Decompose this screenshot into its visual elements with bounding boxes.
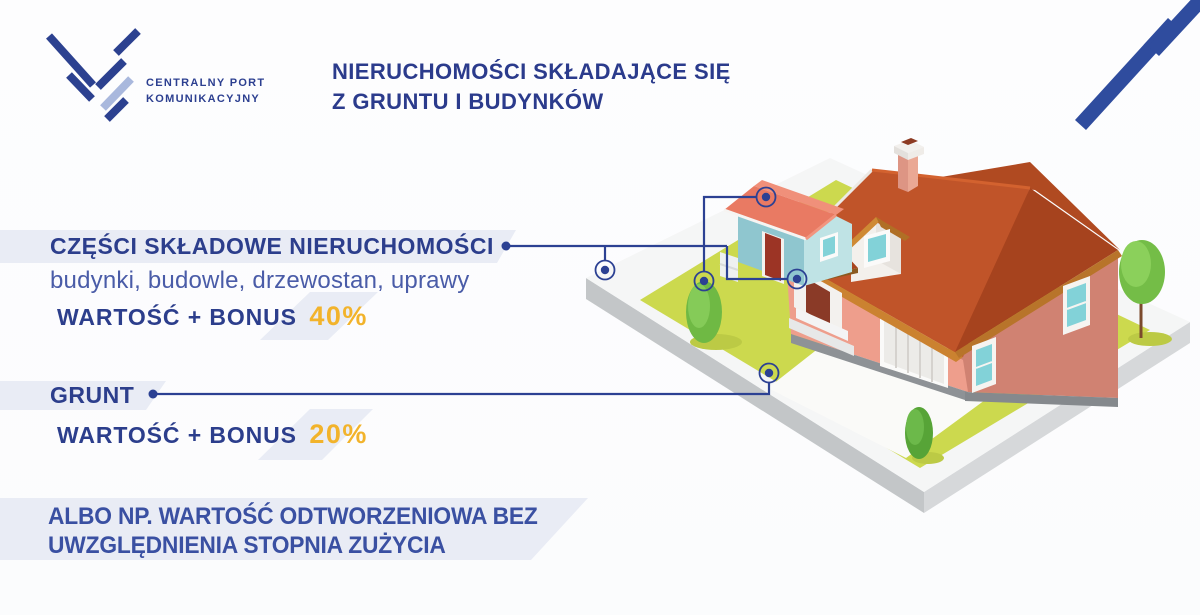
marker-dot-components-origin <box>502 242 511 251</box>
property-illustration <box>0 0 1200 615</box>
shed-door <box>765 233 781 281</box>
land-connector-line <box>152 383 769 394</box>
infographic-canvas: CENTRALNY PORT KOMUNIKACYJNY NIERUCHOMOŚ… <box>0 0 1200 615</box>
marker-dot-land-origin <box>149 390 158 399</box>
